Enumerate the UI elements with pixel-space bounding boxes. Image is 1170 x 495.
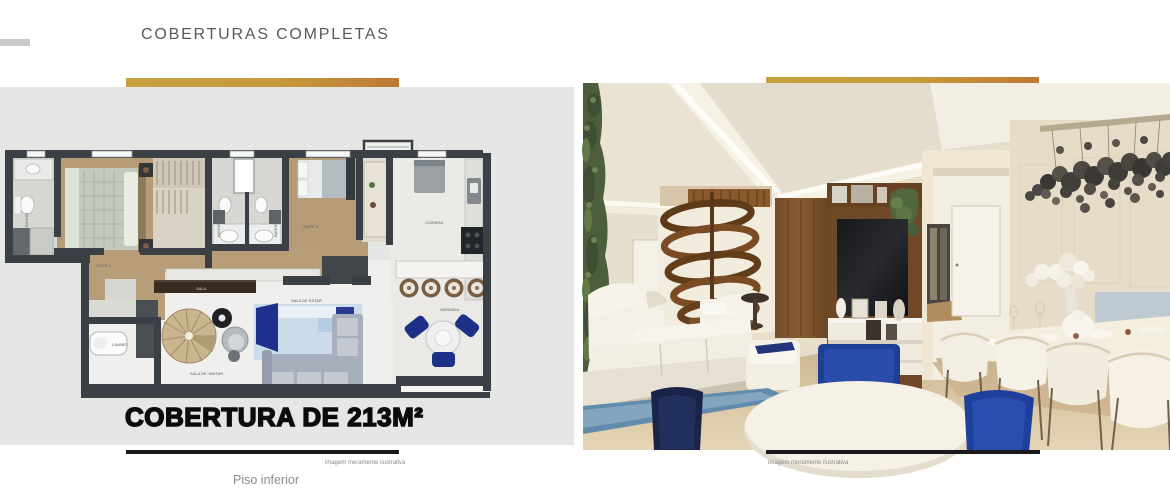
svg-text:imagem meramente ilustrativa: imagem meramente ilustrativa: [325, 460, 406, 466]
svg-text:imagem meramente ilustrativa: imagem meramente ilustrativa: [768, 460, 849, 466]
svg-text:COBERTURA DE 213M²: COBERTURA DE 213M²: [125, 402, 423, 432]
svg-text:Piso inferior: Piso inferior: [233, 473, 299, 487]
svg-text:VARANDA: VARANDA: [440, 307, 459, 312]
svg-text:SUITE 1: SUITE 1: [96, 263, 112, 268]
svg-text:COZINHA: COZINHA: [425, 220, 443, 225]
svg-text:BANHO: BANHO: [24, 213, 29, 227]
svg-text:SALA DE ESTAR: SALA DE ESTAR: [291, 298, 322, 303]
svg-text:SALA DE JANTAR: SALA DE JANTAR: [190, 371, 223, 376]
svg-text:LAVABO: LAVABO: [112, 342, 127, 347]
svg-text:BANHO: BANHO: [216, 223, 221, 237]
svg-text:SUITE 3: SUITE 3: [303, 224, 319, 229]
svg-text:SALA: SALA: [196, 286, 207, 291]
svg-text:COBERTURAS COMPLETAS: COBERTURAS COMPLETAS: [141, 26, 390, 43]
svg-text:BANHO: BANHO: [273, 223, 278, 237]
